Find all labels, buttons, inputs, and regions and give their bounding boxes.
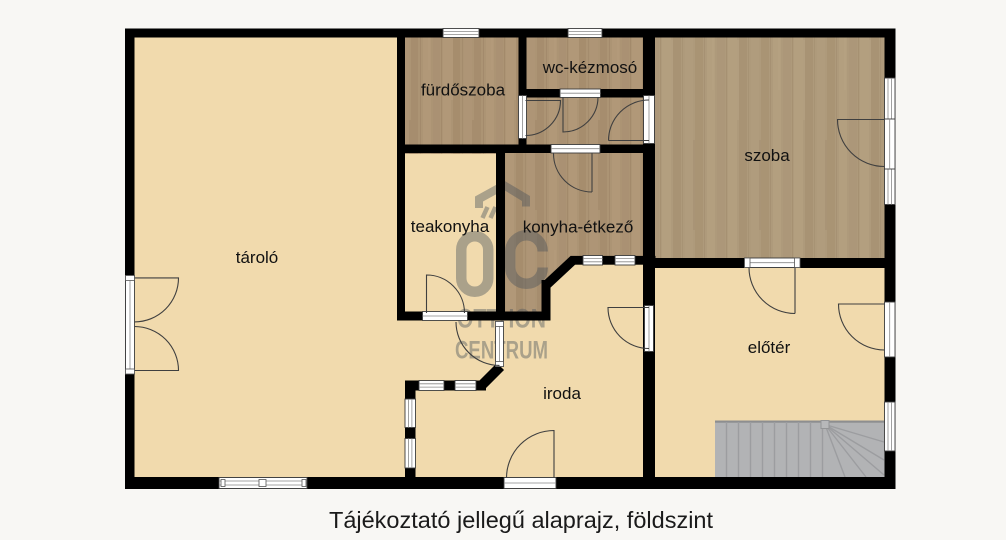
- svg-text:Tájékoztató jellegű alaprajz,: Tájékoztató jellegű alaprajz, földszint: [329, 507, 714, 533]
- svg-text:fürdőszoba: fürdőszoba: [421, 81, 506, 100]
- svg-text:wc-kézmosó: wc-kézmosó: [542, 58, 637, 77]
- svg-text:iroda: iroda: [543, 384, 581, 403]
- svg-text:tároló: tároló: [236, 248, 279, 267]
- svg-text:konyha-étkező: konyha-étkező: [523, 218, 634, 237]
- svg-text:előtér: előtér: [748, 338, 791, 357]
- svg-text:teakonyha: teakonyha: [411, 217, 490, 236]
- svg-text:szoba: szoba: [744, 146, 790, 165]
